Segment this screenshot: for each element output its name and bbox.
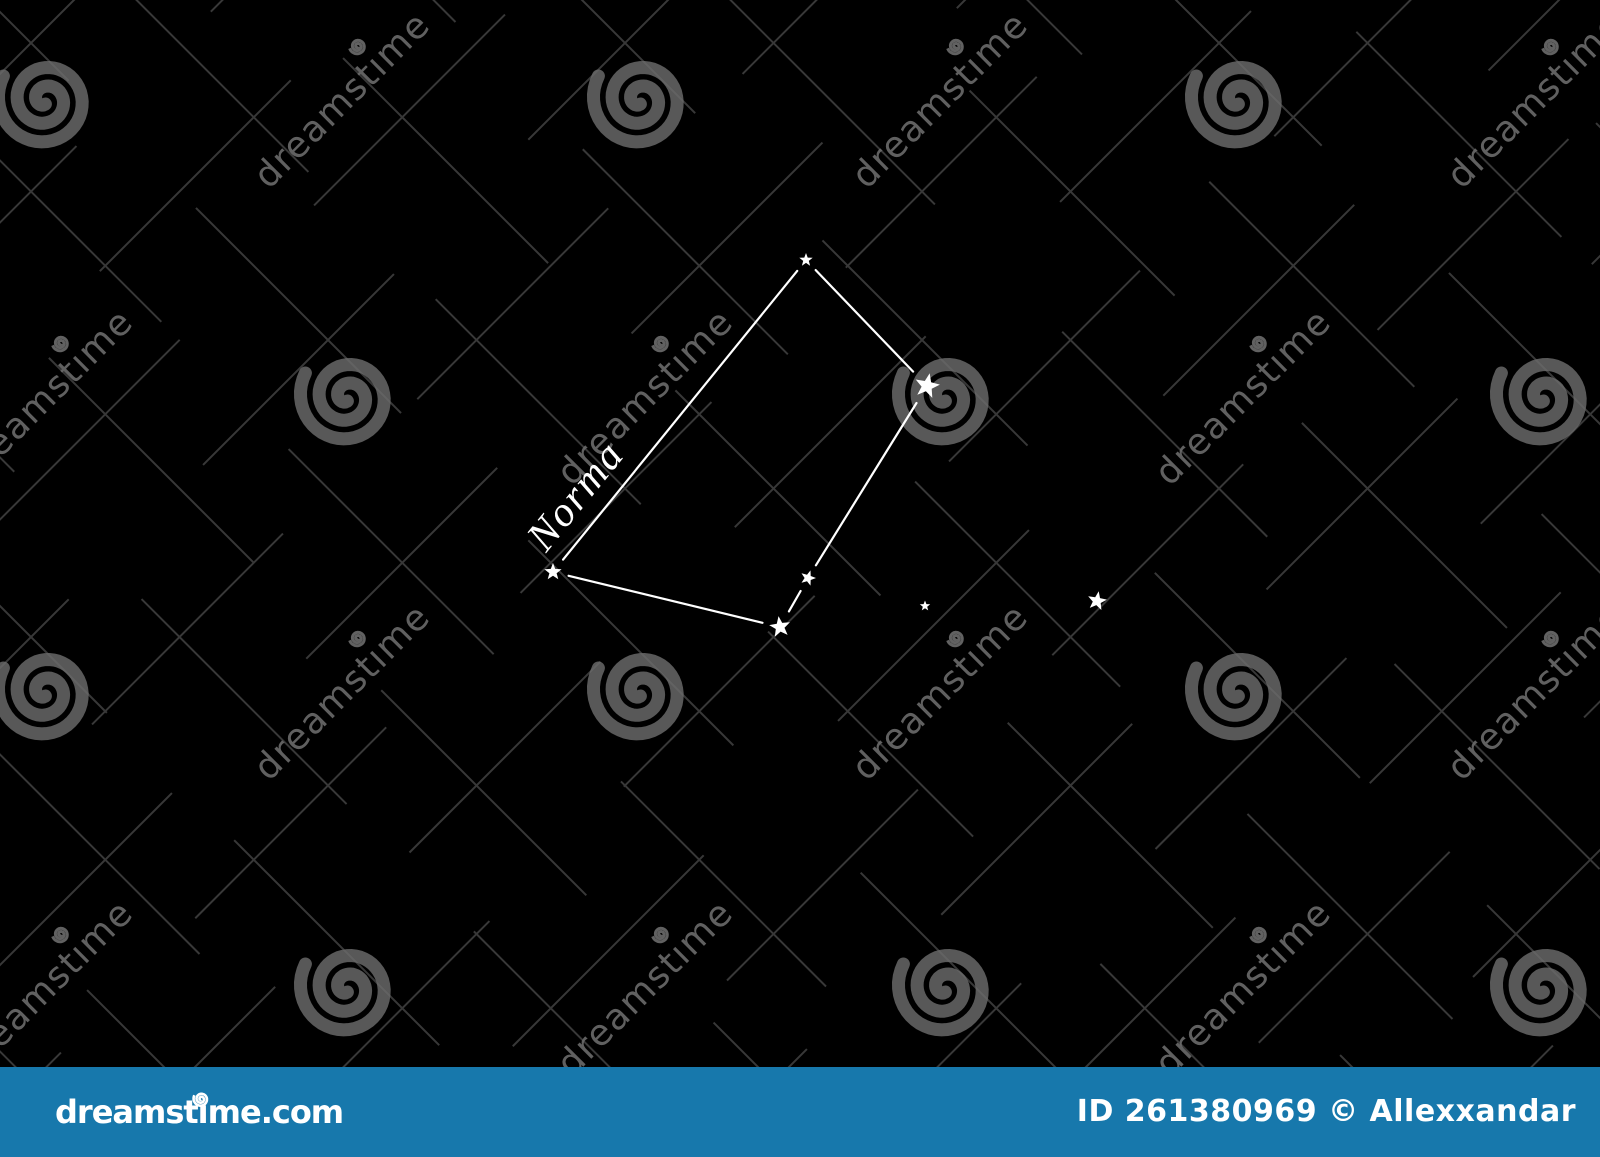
lattice-line [0,8,1600,1157]
watermark-brand-text-label: dreamstıme [844,596,1036,788]
lattice-line [0,305,1600,1157]
lattice-line [0,0,1600,1157]
watermark-spiral [1497,365,1581,439]
watermark-brand-text-label: dreamstıme [549,892,741,1084]
watermark-spiral [1497,956,1581,1030]
lattice-line [0,101,1600,1157]
watermark-brand-text: dreamstıme [0,292,142,493]
watermark-brand-text-label: dreamstıme [1147,892,1339,1084]
constellation-line [816,403,917,565]
watermark-brand-text-label: dreamstıme [246,596,438,788]
faint-star [920,601,930,611]
watermark-spiral [301,956,385,1030]
watermark-spiral [594,660,678,734]
watermark-spiral [1192,68,1276,142]
logo-i-dot-spiral [194,1094,207,1106]
lattice-line [0,0,1600,1157]
constellation-figure: Norma [518,253,1107,637]
watermark-spiral [0,660,82,734]
middle-star [802,570,817,585]
watermark-brand-text: dreamstıme [1430,587,1600,788]
top-star [799,253,812,266]
lattice-line [0,0,1600,79]
lattice-line [0,0,1600,1157]
constellation-line [816,270,913,372]
lattice-line [0,0,1600,376]
lattice-line [0,0,1600,970]
lattice-line [0,0,1600,134]
lattice-line [0,0,1600,728]
lattice-line [0,0,1600,580]
constellation-line [789,591,801,611]
watermark-brand-text: dreamstıme [237,587,438,788]
watermark-spiral [1192,660,1276,734]
watermark-brand-text-label: dreamstıme [246,4,438,196]
watermark-spiral [899,956,983,1030]
lattice-line [0,0,1600,1157]
watermark-bar: dreamstıme.com ID 261380969 © Allexxanda… [0,1067,1600,1157]
watermark-brand-text: dreamstıme [540,883,741,1084]
lattice-line [0,0,1600,1157]
watermark-brand-text-label: dreamstıme [844,4,1036,196]
watermark-brand-text-label: dreamstıme [0,892,142,1084]
lattice-line [0,0,1600,283]
dreamstime-logo: dreamstıme.com [55,1096,343,1128]
watermark-lattice [0,0,1600,1157]
image-credit-text: ID 261380969 © Allexxandar [1077,1097,1576,1127]
lattice-line [0,156,1600,1157]
lattice-line [0,453,1600,1157]
lattice-line [0,0,1600,227]
lattice-line [0,0,1600,1157]
watermark-brand-text: dreamstıme [1430,0,1600,197]
lattice-line [0,0,1600,1118]
dreamstime-logo-spiral-icon [192,1090,210,1108]
watermark-brand-text-label: dreamstıme [0,301,142,493]
lattice-line [0,0,1600,431]
watermark-brand-text-label: dreamstıme [1439,4,1600,196]
watermark-brand-text: dreamstıme [835,587,1036,788]
lattice-line [0,0,1600,1025]
watermark-brand-text: dreamstıme [0,883,142,1084]
watermark-spiral [899,365,983,439]
watermark-spiral [301,365,385,439]
lattice-line [0,0,1600,1157]
lattice-line [0,546,1600,1157]
far-right-star [1088,591,1107,610]
watermark-spiral [594,68,678,142]
lattice-line [0,0,1600,673]
stock-image-canvas: dreamstımedreamstımedreamstımedreamstıme… [0,0,1600,1157]
lattice-line [0,0,1600,1157]
constellation-sky-svg: dreamstımedreamstımedreamstımedreamstıme… [0,0,1600,1157]
watermark-marks: dreamstımedreamstımedreamstımedreamstıme… [0,0,1600,1085]
lattice-line [0,0,1600,524]
watermark-spiral [0,68,82,142]
watermark-brand-text: dreamstıme [835,0,1036,197]
bottom-star [769,616,790,637]
constellation-line [569,576,763,623]
watermark-brand-text-label: dreamstıme [1439,596,1600,788]
watermark-brand-text: dreamstıme [237,0,438,197]
watermark-brand-text: dreamstıme [1138,292,1339,493]
